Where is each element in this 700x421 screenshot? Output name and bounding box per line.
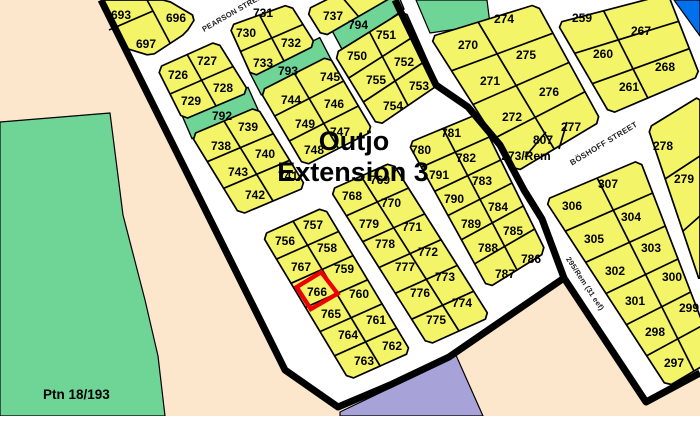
svg-text:299: 299: [679, 301, 699, 315]
svg-text:271: 271: [480, 74, 500, 88]
svg-text:297: 297: [664, 356, 684, 370]
svg-text:305: 305: [584, 232, 604, 246]
svg-text:788: 788: [478, 241, 498, 255]
svg-text:693: 693: [111, 8, 131, 22]
svg-text:742: 742: [245, 188, 265, 202]
svg-text:790: 790: [444, 192, 464, 206]
svg-text:278: 278: [653, 139, 673, 153]
svg-text:Ptn 18/193: Ptn 18/193: [43, 387, 110, 402]
svg-text:774: 774: [452, 296, 472, 310]
svg-text:752: 752: [394, 55, 414, 69]
svg-text:759: 759: [334, 262, 354, 276]
svg-text:760: 760: [349, 287, 369, 301]
svg-text:750: 750: [347, 49, 367, 63]
svg-text:758: 758: [317, 241, 337, 255]
svg-text:Outjo: Outjo: [319, 126, 389, 156]
svg-text:794: 794: [348, 18, 368, 32]
svg-text:807: 807: [533, 133, 553, 147]
svg-text:792: 792: [212, 109, 232, 123]
svg-text:277: 277: [561, 120, 581, 134]
svg-text:749: 749: [295, 117, 315, 131]
svg-text:259: 259: [572, 11, 592, 25]
svg-text:762: 762: [382, 339, 402, 353]
svg-text:761: 761: [366, 313, 386, 327]
svg-text:306: 306: [562, 199, 582, 213]
svg-text:260: 260: [593, 47, 613, 61]
svg-text:783: 783: [472, 174, 492, 188]
svg-text:751: 751: [376, 28, 396, 42]
svg-text:766: 766: [307, 285, 327, 299]
svg-text:780: 780: [411, 143, 431, 157]
svg-text:270: 270: [458, 38, 478, 52]
svg-text:731: 731: [253, 6, 273, 20]
svg-text:696: 696: [166, 11, 186, 25]
svg-text:737: 737: [323, 9, 343, 23]
svg-text:775: 775: [426, 313, 446, 327]
svg-text:782: 782: [456, 151, 476, 165]
svg-text:754: 754: [383, 99, 403, 113]
svg-text:784: 784: [488, 200, 508, 214]
svg-text:791: 791: [429, 168, 449, 182]
svg-text:732: 732: [281, 36, 301, 50]
svg-text:738: 738: [211, 139, 231, 153]
svg-text:303: 303: [641, 241, 661, 255]
svg-text:763: 763: [354, 354, 374, 368]
svg-text:793: 793: [278, 64, 298, 78]
svg-text:756: 756: [275, 234, 295, 248]
svg-text:261: 261: [619, 80, 639, 94]
svg-text:307: 307: [598, 177, 618, 191]
svg-text:745: 745: [320, 70, 340, 84]
svg-text:765: 765: [321, 307, 341, 321]
svg-text:298: 298: [645, 325, 665, 339]
svg-text:787: 787: [495, 267, 515, 281]
svg-text:757: 757: [303, 218, 323, 232]
svg-text:764: 764: [338, 328, 358, 342]
svg-text:275: 275: [516, 48, 536, 62]
svg-text:274: 274: [494, 12, 514, 26]
svg-text:786: 786: [521, 252, 541, 266]
svg-text:276: 276: [539, 85, 559, 99]
svg-text:304: 304: [621, 210, 641, 224]
svg-text:776: 776: [410, 286, 430, 300]
svg-text:768: 768: [342, 189, 362, 203]
svg-text:697: 697: [136, 37, 156, 51]
svg-text:726: 726: [168, 68, 188, 82]
svg-text:740: 740: [255, 147, 275, 161]
svg-text:771: 771: [402, 220, 422, 234]
svg-text:739: 739: [238, 120, 258, 134]
svg-text:272: 272: [502, 110, 522, 124]
svg-text:746: 746: [324, 97, 344, 111]
svg-text:733: 733: [253, 56, 273, 70]
svg-text:753: 753: [409, 79, 429, 93]
svg-text:767: 767: [291, 260, 311, 274]
svg-text:279: 279: [674, 172, 694, 186]
svg-text:729: 729: [181, 94, 201, 108]
svg-text:772: 772: [418, 245, 438, 259]
svg-text:781: 781: [441, 126, 461, 140]
svg-text:773: 773: [435, 270, 455, 284]
svg-text:779: 779: [359, 217, 379, 231]
svg-text:727: 727: [197, 54, 217, 68]
svg-text:267: 267: [631, 24, 651, 38]
svg-text:755: 755: [366, 73, 386, 87]
svg-text:744: 744: [281, 93, 301, 107]
svg-text:728: 728: [213, 81, 233, 95]
svg-text:785: 785: [503, 224, 523, 238]
svg-text:273/Rem: 273/Rem: [501, 149, 550, 163]
svg-text:743: 743: [228, 165, 248, 179]
svg-text:778: 778: [375, 237, 395, 251]
svg-text:730: 730: [236, 26, 256, 40]
svg-text:Extension 3: Extension 3: [277, 157, 429, 187]
svg-text:301: 301: [625, 294, 645, 308]
svg-text:268: 268: [655, 60, 675, 74]
svg-text:300: 300: [662, 270, 682, 284]
svg-text:302: 302: [605, 264, 625, 278]
svg-text:770: 770: [381, 196, 401, 210]
svg-text:789: 789: [461, 217, 481, 231]
svg-text:777: 777: [395, 260, 415, 274]
